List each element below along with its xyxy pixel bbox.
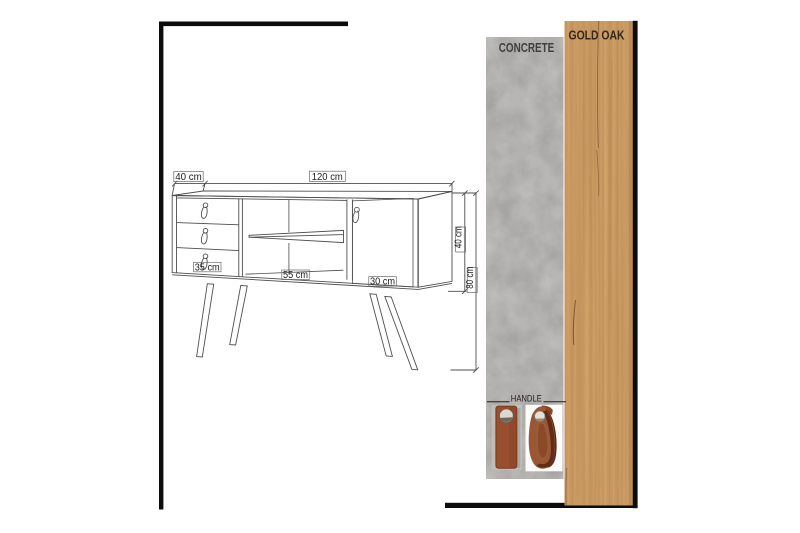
svg-text:120 cm: 120 cm [312,172,343,183]
svg-text:40 cm: 40 cm [175,172,202,183]
svg-text:CONCRETE: CONCRETE [499,41,555,55]
svg-text:40 cm: 40 cm [454,226,465,248]
svg-text:HANDLE: HANDLE [511,394,542,405]
svg-text:35 cm: 35 cm [195,262,220,273]
svg-text:80 cm: 80 cm [465,267,476,289]
svg-text:30 cm: 30 cm [370,277,395,288]
svg-text:GOLD OAK: GOLD OAK [569,29,625,43]
svg-text:55 cm: 55 cm [283,270,308,281]
